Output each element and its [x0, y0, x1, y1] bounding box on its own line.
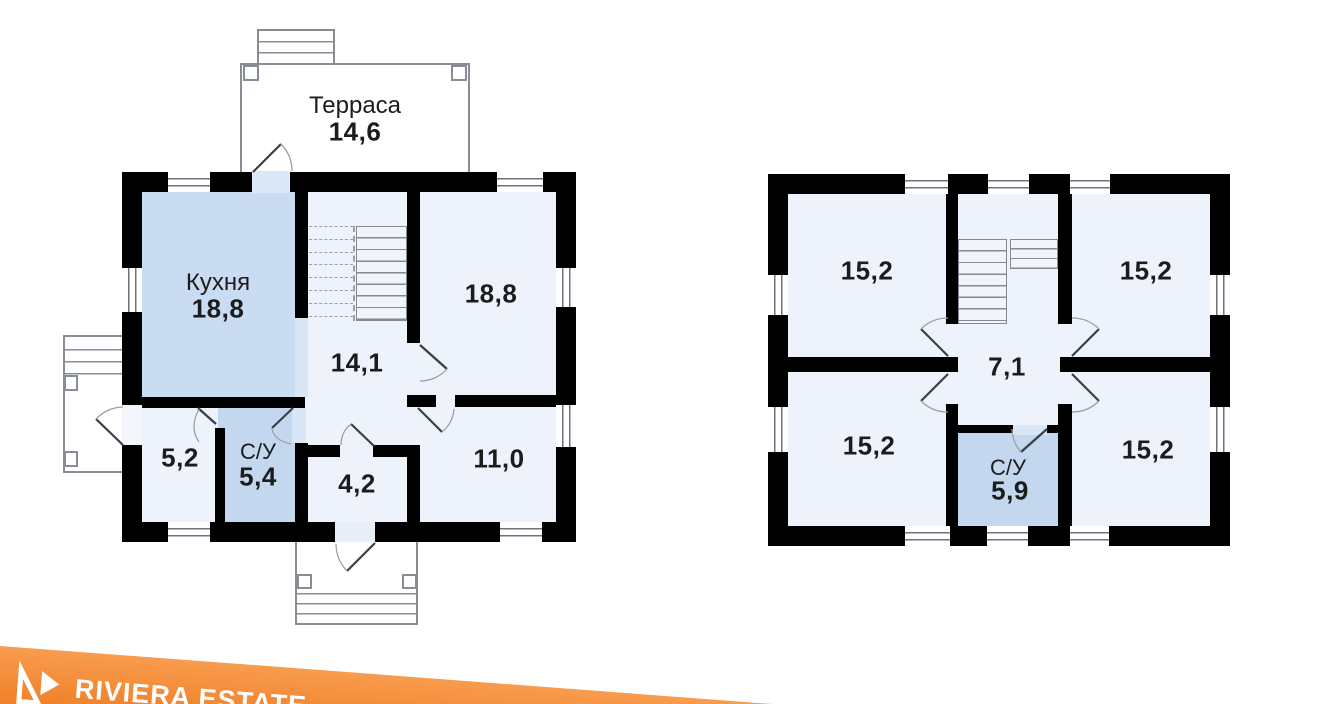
- bathroom1-area: 5,4: [239, 462, 277, 493]
- brand-logo-icon: [14, 659, 63, 704]
- bathroom2-area: 5,9: [991, 476, 1029, 507]
- room-area: 11,0: [473, 444, 524, 475]
- room-area: 15,2: [841, 256, 894, 287]
- room-area: 18,8: [465, 279, 518, 310]
- kitchen-area: 18,8: [192, 294, 245, 325]
- terrace-area: 14,6: [329, 117, 382, 148]
- room-area: 15,2: [1122, 435, 1175, 466]
- door-swings-overlay: [0, 0, 1338, 704]
- room-area: 5,2: [161, 443, 199, 474]
- room-area: 15,2: [1120, 256, 1173, 287]
- hall-area: 7,1: [988, 352, 1026, 383]
- door-arc: [96, 144, 1099, 571]
- brand-name: RIVIERA ESTATE: [74, 674, 308, 704]
- room-area: 15,2: [843, 431, 896, 462]
- door-leaf: [96, 144, 1099, 571]
- floor-plan-canvas: Терраса 14,6 Кухня 18,8 18,8 14,1 5,2 С/…: [0, 0, 1338, 704]
- hall-area: 14,1: [331, 348, 384, 379]
- vestibule-area: 4,2: [338, 469, 376, 500]
